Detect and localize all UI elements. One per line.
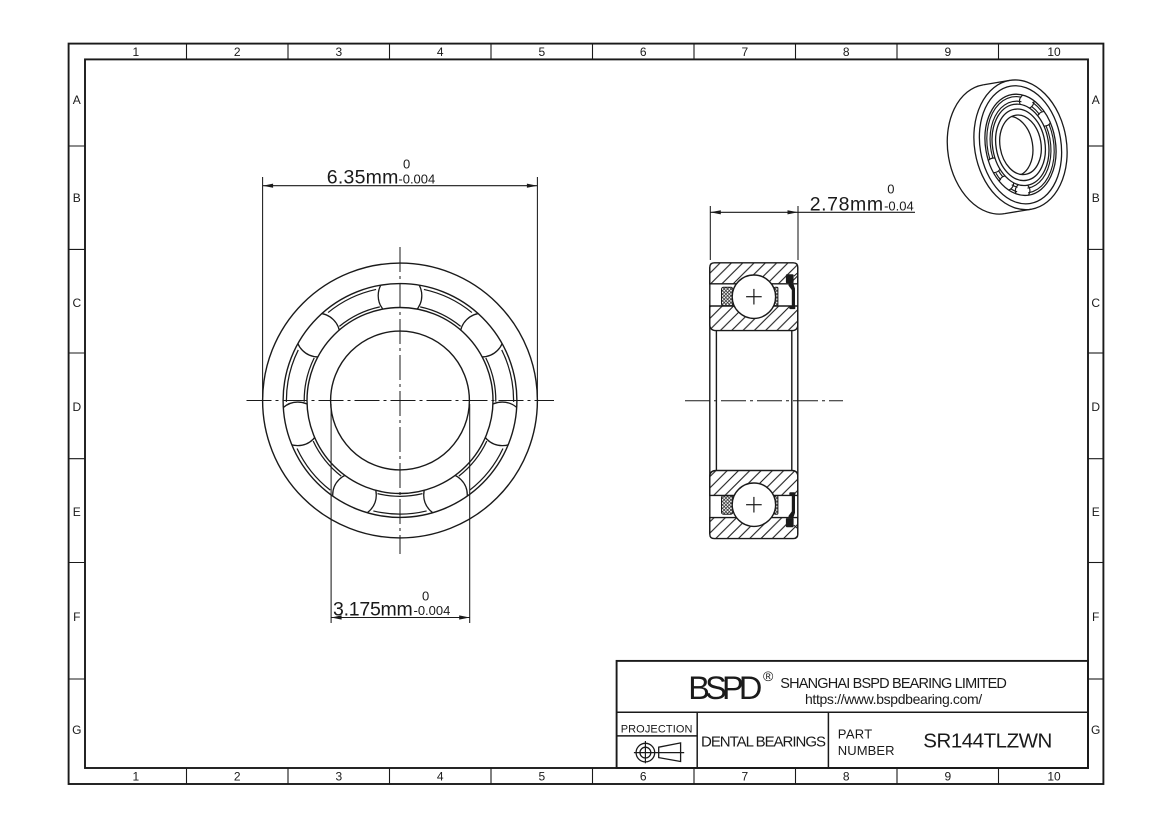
- svg-text:A: A: [1092, 93, 1100, 107]
- svg-text:-0.004: -0.004: [414, 603, 451, 618]
- svg-text:9: 9: [944, 45, 951, 59]
- svg-text:3: 3: [335, 769, 342, 783]
- svg-text:4: 4: [437, 769, 444, 783]
- svg-text:3.175mm: 3.175mm: [333, 599, 413, 621]
- svg-text:C: C: [72, 296, 81, 310]
- svg-text:9: 9: [944, 769, 951, 783]
- svg-text:7: 7: [741, 769, 748, 783]
- svg-text:6: 6: [640, 769, 647, 783]
- svg-text:2: 2: [234, 45, 241, 59]
- svg-text:D: D: [1091, 400, 1100, 414]
- svg-text:G: G: [72, 723, 81, 737]
- svg-text:10: 10: [1047, 769, 1061, 783]
- svg-text:A: A: [73, 93, 81, 107]
- svg-text:D: D: [72, 400, 81, 414]
- svg-text:6: 6: [640, 45, 647, 59]
- svg-text:-0.04: -0.04: [884, 199, 914, 214]
- svg-text:5: 5: [538, 45, 545, 59]
- svg-text:®: ®: [763, 668, 774, 684]
- svg-text:C: C: [1091, 296, 1100, 310]
- svg-text:B: B: [1092, 191, 1100, 205]
- svg-text:8: 8: [843, 45, 850, 59]
- svg-text:BSPD: BSPD: [688, 670, 762, 706]
- svg-text:1: 1: [132, 769, 139, 783]
- svg-text:2.78mm: 2.78mm: [810, 193, 883, 215]
- svg-text:3: 3: [335, 45, 342, 59]
- svg-text:F: F: [73, 610, 80, 624]
- svg-text:0: 0: [403, 157, 410, 172]
- svg-text:NUMBER: NUMBER: [838, 743, 895, 758]
- svg-text:7: 7: [741, 45, 748, 59]
- svg-text:10: 10: [1047, 45, 1061, 59]
- svg-text:8: 8: [843, 769, 850, 783]
- svg-text:2: 2: [234, 769, 241, 783]
- svg-text:1: 1: [132, 45, 139, 59]
- svg-text:PROJECTION: PROJECTION: [621, 724, 693, 736]
- svg-text:SHANGHAI BSPD BEARING LIMITED: SHANGHAI BSPD BEARING LIMITED: [780, 676, 1007, 692]
- svg-text:https://www.bspdbearing.com/: https://www.bspdbearing.com/: [805, 691, 982, 707]
- svg-text:SR144TLZWN: SR144TLZWN: [923, 729, 1052, 752]
- svg-text:E: E: [1092, 505, 1100, 519]
- svg-text:-0.004: -0.004: [398, 171, 435, 186]
- svg-text:0: 0: [422, 589, 429, 604]
- svg-text:B: B: [73, 191, 81, 205]
- svg-text:F: F: [1092, 610, 1099, 624]
- svg-text:G: G: [1091, 723, 1100, 737]
- svg-text:PART: PART: [838, 726, 872, 741]
- svg-text:E: E: [73, 505, 81, 519]
- svg-text:0: 0: [887, 182, 894, 197]
- svg-text:6.35mm: 6.35mm: [327, 166, 399, 188]
- svg-text:DENTAL BEARINGS: DENTAL BEARINGS: [701, 733, 826, 750]
- svg-text:5: 5: [538, 769, 545, 783]
- svg-text:4: 4: [437, 45, 444, 59]
